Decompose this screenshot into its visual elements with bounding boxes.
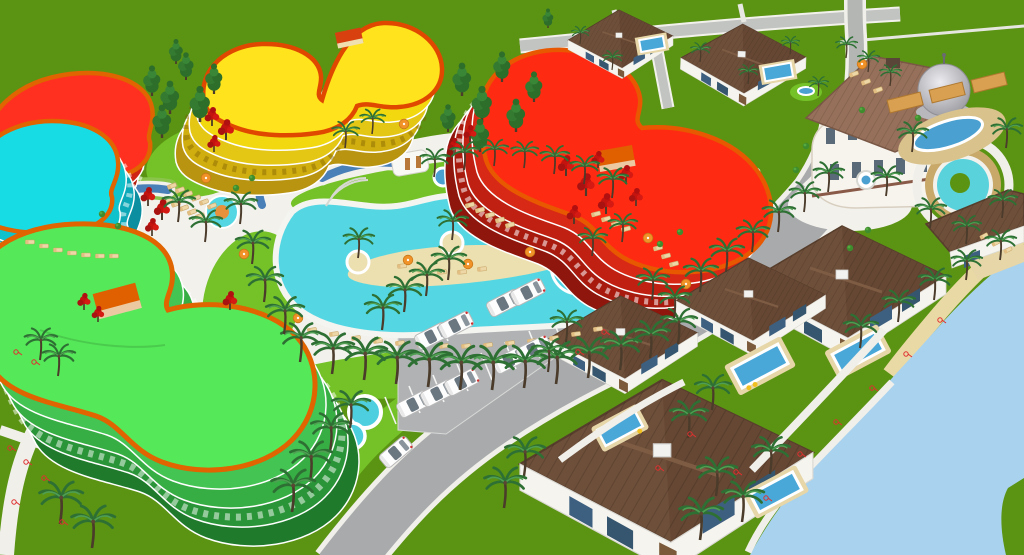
lounge-chair [26, 240, 35, 244]
shrub [99, 211, 105, 217]
lounge-chair [593, 326, 602, 331]
lounge-chair [54, 248, 63, 252]
shrub [859, 107, 865, 113]
umbrella [525, 247, 535, 257]
lounge-chair [110, 254, 119, 258]
shrub [793, 167, 799, 173]
shrub [915, 115, 921, 121]
lounge-chair [82, 253, 91, 257]
umbrella [239, 249, 249, 259]
umbrella [201, 173, 211, 183]
umbrella [399, 119, 409, 129]
shrub [249, 175, 255, 181]
mansion-fountain [862, 176, 871, 185]
lounge-chair [68, 251, 77, 255]
resort-3d-render [0, 0, 1024, 555]
round-island-pool [202, 192, 242, 232]
shrub [865, 227, 871, 233]
shrub [115, 223, 121, 229]
shrub [233, 185, 239, 191]
shrub [803, 143, 809, 149]
fountain-island [950, 173, 970, 193]
lounge-chair [477, 267, 486, 272]
shrub [847, 245, 853, 251]
lounge-chair [457, 270, 466, 275]
umbrella [643, 233, 653, 243]
shrub [677, 229, 683, 235]
lounge-chair [571, 331, 580, 336]
shrub [657, 241, 663, 247]
umbrella [857, 59, 867, 69]
lounge-chair [96, 254, 105, 258]
lounge-chair [329, 331, 338, 336]
umbrella [403, 255, 413, 265]
scene-canvas [0, 0, 1024, 555]
lounge-chair [40, 244, 49, 248]
garden-pond [798, 87, 814, 95]
